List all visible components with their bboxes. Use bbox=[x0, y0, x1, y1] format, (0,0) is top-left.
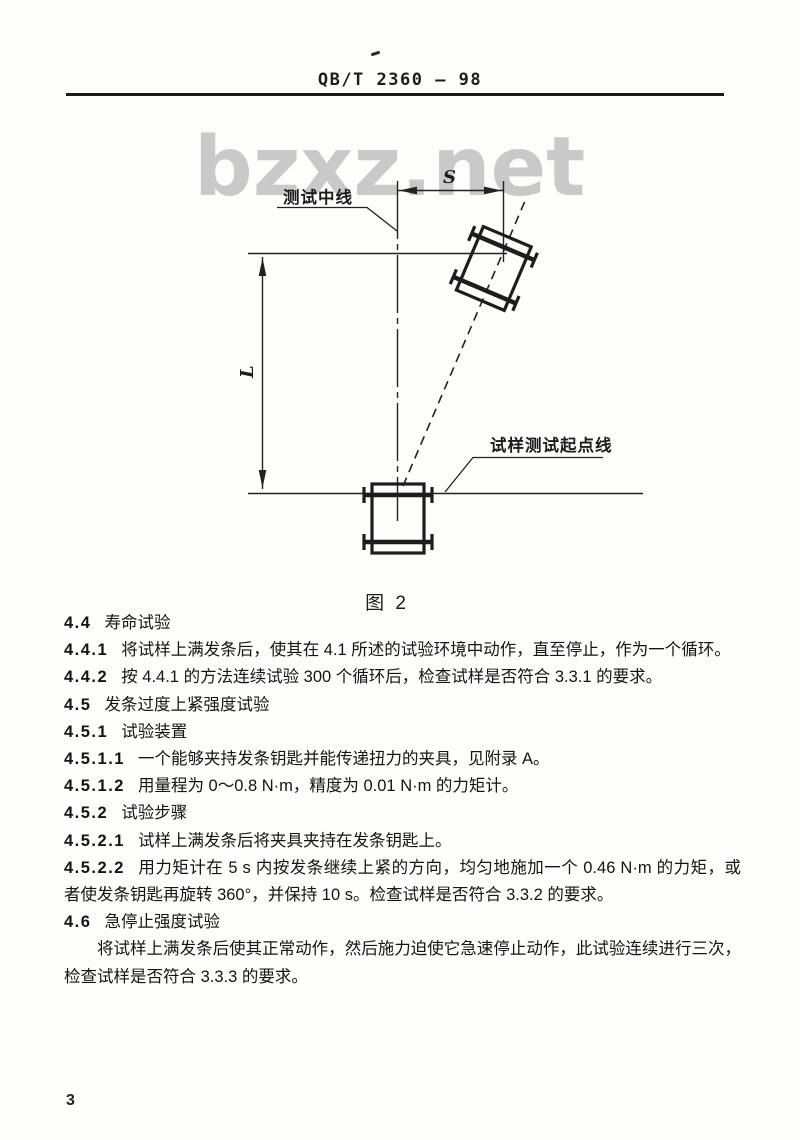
clause-4-5-1: 4.5.1试验装置 bbox=[64, 719, 741, 746]
page-number: 3 bbox=[66, 1092, 75, 1110]
clause-text-block: 4.4寿命试验 4.4.1将试样上满发条后，使其在 4.1 所述的试验环境中动作… bbox=[64, 610, 741, 991]
clause-4-5-1-2: 4.5.1.2用量程为 0～0.8 N·m，精度为 0.01 N·m 的力矩计。 bbox=[64, 773, 741, 800]
clause-number: 4.5.1 bbox=[64, 723, 108, 741]
scanned-standard-page: bzxz.net QB/T 2360 — 98 S L 测试中线 bbox=[0, 0, 800, 1140]
clause-text: 一个能够夹持发条钥匙并能传递扭力的夹具，见附录 A。 bbox=[138, 750, 550, 768]
clause-number: 4.5.2.2 bbox=[64, 859, 125, 877]
dimension-s: S bbox=[398, 167, 504, 194]
clause-text: 用量程为 0～0.8 N·m，精度为 0.01 N·m 的力矩计。 bbox=[138, 777, 518, 795]
clause-4-5-2-2: 4.5.2.2用力矩计在 5 s 内按发条继续上紧的方向，均匀地施加一个 0.4… bbox=[64, 855, 741, 909]
clause-text: 将试样上满发条后使其正常动作，然后施力迫使它急速停止动作，此试验连续进行三次，检… bbox=[64, 940, 741, 985]
clause-number: 4.5.2 bbox=[64, 804, 108, 822]
start-line-callout: 试样测试起点线 bbox=[445, 435, 613, 492]
dimension-l: L bbox=[237, 257, 266, 489]
clause-number: 4.5.1.1 bbox=[64, 750, 125, 768]
clause-text: 寿命试验 bbox=[104, 614, 170, 632]
clause-4-5-2-1: 4.5.2.1试样上满发条后将夹具夹持在发条钥匙上。 bbox=[64, 828, 741, 855]
clause-4-4: 4.4寿命试验 bbox=[64, 610, 741, 637]
center-line-callout: 测试中线 bbox=[277, 187, 397, 231]
dim-l-label: L bbox=[237, 365, 258, 379]
clause-4-5-1-1: 4.5.1.1一个能够夹持发条钥匙并能传递扭力的夹具，见附录 A。 bbox=[64, 746, 741, 773]
clause-text: 急停止强度试验 bbox=[104, 913, 220, 931]
header-rule bbox=[66, 93, 724, 96]
clause-4-4-1: 4.4.1将试样上满发条后，使其在 4.1 所述的试验环境中动作，直至停止，作为… bbox=[64, 637, 741, 664]
clause-number: 4.4.2 bbox=[64, 668, 108, 686]
start-line-label: 试样测试起点线 bbox=[490, 435, 613, 455]
clause-number: 4.5 bbox=[64, 696, 91, 714]
clause-text: 按 4.4.1 的方法连续试验 300 个循环后，检查试样是否符合 3.3.1 … bbox=[121, 668, 662, 686]
clause-text: 将试样上满发条后，使其在 4.1 所述的试验环境中动作，直至停止，作为一个循环。 bbox=[121, 641, 731, 659]
clause-number: 4.4 bbox=[64, 614, 91, 632]
center-line-label: 测试中线 bbox=[283, 187, 353, 207]
clause-text: 试验步骤 bbox=[121, 804, 187, 822]
clause-number: 4.5.2.1 bbox=[64, 832, 125, 850]
clause-number: 4.5.1.2 bbox=[64, 777, 125, 795]
clause-number: 4.6 bbox=[64, 913, 91, 931]
clause-4-5: 4.5发条过度上紧强度试验 bbox=[64, 692, 741, 719]
clause-4-6: 4.6急停止强度试验 bbox=[64, 909, 741, 936]
clause-4-4-2: 4.4.2按 4.4.1 的方法连续试验 300 个循环后，检查试样是否符合 3… bbox=[64, 664, 741, 691]
clause-number: 4.4.1 bbox=[64, 641, 108, 659]
clause-4-5-2: 4.5.2试验步骤 bbox=[64, 800, 741, 827]
dim-s-label: S bbox=[443, 167, 456, 188]
clause-text: 用力矩计在 5 s 内按发条继续上紧的方向，均匀地施加一个 0.46 N·m 的… bbox=[64, 859, 741, 904]
clause-text: 试样上满发条后将夹具夹持在发条钥匙上。 bbox=[138, 832, 452, 850]
toy-car-stop-position bbox=[449, 223, 539, 313]
center-line-leader bbox=[277, 208, 397, 232]
start-line-leader bbox=[445, 458, 603, 493]
standard-code-header: QB/T 2360 — 98 bbox=[0, 70, 800, 90]
clause-text: 发条过度上紧强度试验 bbox=[104, 696, 269, 714]
clause-4-6-body: 将试样上满发条后使其正常动作，然后施力迫使它急速停止动作，此试验连续进行三次，检… bbox=[64, 936, 741, 990]
clause-text: 试验装置 bbox=[121, 723, 187, 741]
